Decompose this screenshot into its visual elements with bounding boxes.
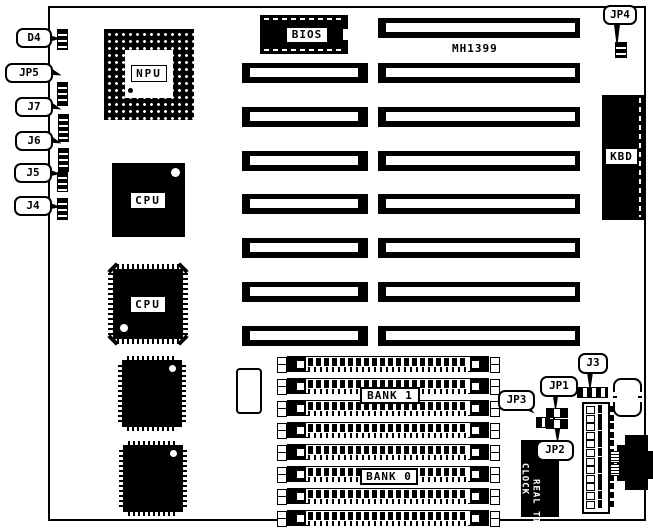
cpu-upper-pin1-dot	[171, 168, 180, 177]
isa-slot	[378, 18, 580, 38]
isa-slot	[378, 63, 580, 83]
jp1-jumper-block	[546, 408, 568, 428]
jp1-label: JP1	[540, 376, 578, 397]
left-callout-connector-2	[58, 114, 69, 142]
isa-slot	[378, 194, 580, 214]
left-callout-connector-0	[57, 29, 68, 50]
left-callout-label-0: D4	[16, 28, 52, 48]
kbd-plug-2	[610, 464, 620, 476]
motherboard-diagram: MH1399 D4JP5J7J6J5J4 NPU CPU CPU	[0, 0, 653, 529]
left-callout-label-5: J4	[14, 196, 52, 216]
left-callout-connector-5	[57, 198, 68, 220]
jp4-label: JP4	[603, 5, 637, 25]
left-callout-label-2: J7	[15, 97, 53, 117]
power-connector	[582, 402, 610, 514]
bank0-label: BANK 0	[360, 468, 418, 485]
din-connector-outline	[613, 378, 642, 417]
cpu-lower-chip: CPU	[113, 269, 183, 339]
kbd-plug-1	[610, 451, 620, 463]
left-callout-label-1: JP5	[5, 63, 53, 83]
bios-chip-notch	[343, 29, 348, 40]
left-callout-connector-3	[58, 148, 69, 172]
npu-chip-label: NPU	[131, 65, 167, 82]
isa-slot	[242, 63, 368, 83]
j3-label: J3	[578, 353, 608, 374]
simm-socket	[277, 422, 500, 438]
isa-slot	[242, 194, 368, 214]
left-callout-connector-1	[57, 82, 68, 106]
cpu-upper-label: CPU	[130, 192, 166, 209]
cpu-lower-label: CPU	[130, 296, 166, 313]
crystal-outline	[236, 368, 262, 414]
isa-slot	[242, 282, 368, 302]
simm-socket	[277, 444, 500, 460]
board-model-text: MH1399	[452, 42, 498, 55]
simm-socket	[277, 356, 500, 372]
qfp-chip-2-pin1-dot	[170, 450, 177, 457]
left-callout-label-3: J6	[15, 131, 53, 151]
qfp-chip-2	[123, 445, 183, 512]
isa-slot	[242, 238, 368, 258]
bank1-label: BANK 1	[360, 387, 420, 404]
j3-connector	[577, 387, 608, 398]
cpu-upper-chip: CPU	[112, 163, 185, 237]
npu-socket: NPU	[104, 29, 194, 120]
qfp-chip-1	[122, 360, 182, 427]
left-callout-label-4: J5	[14, 163, 52, 183]
kbd-controller-chip: KBD	[602, 95, 645, 220]
jp3-label: JP3	[498, 390, 535, 411]
jp2-label: JP2	[536, 440, 574, 461]
isa-slot	[242, 326, 368, 346]
cpu-lower-pin1-dot	[120, 324, 128, 332]
isa-slot	[378, 107, 580, 127]
bios-chip: BIOS	[260, 15, 348, 54]
isa-slot	[378, 238, 580, 258]
isa-slot	[378, 151, 580, 171]
isa-slot	[378, 326, 580, 346]
simm-socket	[277, 488, 500, 504]
isa-slot	[242, 151, 368, 171]
jp4-connector	[615, 42, 627, 58]
kbd-din-body	[609, 435, 653, 492]
left-callout-connector-4	[57, 172, 68, 192]
bios-chip-label: BIOS	[286, 27, 328, 43]
isa-slot	[242, 107, 368, 127]
kbd-chip-label: KBD	[605, 148, 638, 165]
qfp-chip-1-pin1-dot	[169, 365, 176, 372]
isa-slot	[378, 282, 580, 302]
simm-socket	[277, 510, 500, 526]
npu-pin1-dot	[128, 88, 133, 93]
